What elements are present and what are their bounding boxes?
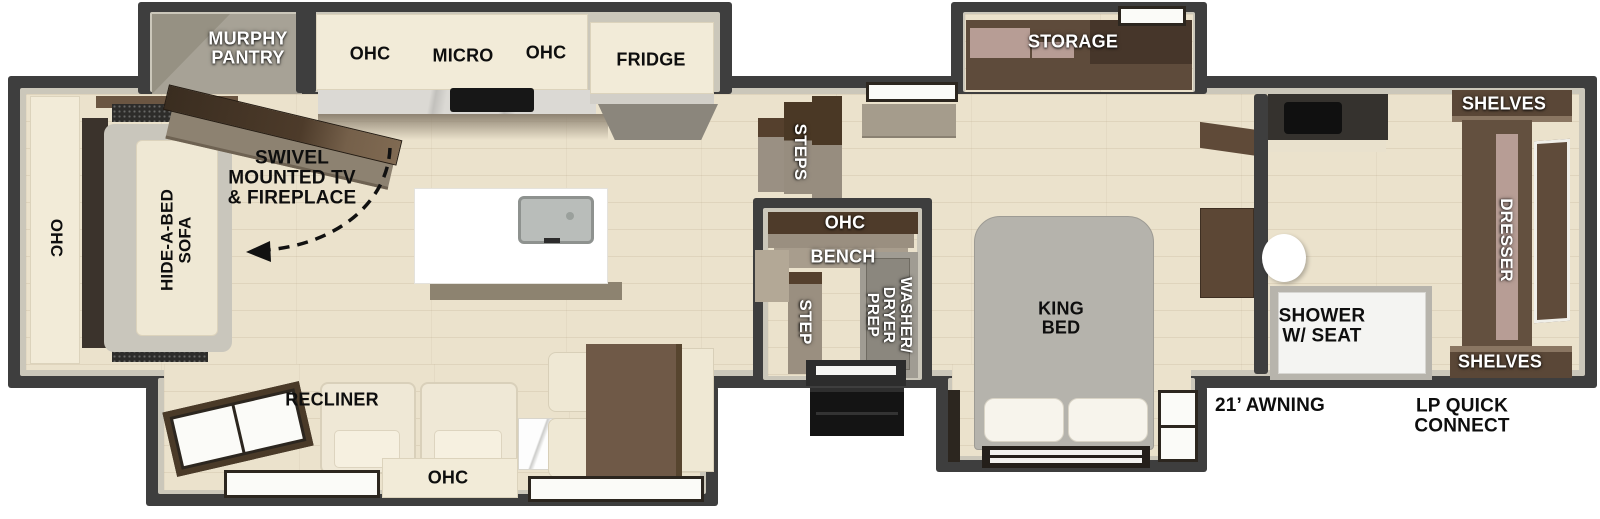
steps-tread-1 — [758, 118, 784, 192]
kitchen-ohc-left-label: OHC — [350, 45, 391, 64]
awning-label: 21’ AWNING — [1215, 396, 1325, 416]
storage-label: STORAGE — [1028, 33, 1118, 52]
bench-corner-cabinet — [755, 250, 789, 302]
living-slide-window-1 — [224, 470, 380, 498]
shower-label: SHOWER W/ SEAT — [1279, 306, 1366, 346]
bath-vanity-base — [1268, 140, 1386, 152]
mid-top-window — [866, 82, 958, 102]
pantry-kitchen-divider-wall — [296, 2, 316, 93]
micro-label: MICRO — [433, 47, 494, 66]
bed-foot-window-pane1 — [990, 450, 1142, 455]
swivel-tv-label: SWIVEL MOUNTED TV & FIREPLACE — [228, 148, 357, 207]
murphy-pantry-label: MURPHY PANTRY — [208, 29, 287, 66]
entry-steps-edge — [816, 412, 898, 415]
dinette-table — [586, 344, 682, 476]
storage-drawer-left — [970, 28, 1030, 58]
bed-foot-window-pane2 — [990, 458, 1142, 463]
fridge-base — [590, 94, 714, 104]
island-sink — [518, 196, 594, 244]
storage-window — [1118, 6, 1186, 26]
lp-quick-connect-label: LP QUICK CONNECT — [1414, 396, 1509, 436]
bed-slide-left-window — [948, 390, 960, 462]
steps-label: STEPS — [791, 124, 809, 181]
toilet — [1262, 234, 1306, 282]
entry-door-sill — [816, 366, 896, 375]
bath-sink — [1284, 102, 1342, 134]
mid-ohc-label: OHC — [825, 214, 866, 233]
pillow-left — [984, 398, 1064, 442]
bed-bath-divider-wall — [1254, 94, 1268, 374]
floorplan: MURPHY PANTRY OHC MICRO OHC FRIDGE STORA… — [0, 0, 1600, 519]
cooktop — [450, 88, 534, 112]
living-slide-window-2 — [528, 476, 704, 502]
rear-ohc-label: OHC — [47, 219, 65, 257]
dresser-label: DRESSER — [1497, 198, 1515, 282]
shelves-bottom-label: SHELVES — [1458, 353, 1542, 372]
pillow-right — [1068, 398, 1148, 442]
step-label: STEP — [796, 299, 814, 344]
living-ohc-label: OHC — [428, 469, 469, 488]
bench-label: BENCH — [810, 248, 875, 267]
fridge-label: FRIDGE — [616, 51, 685, 70]
dinette-banquette — [680, 348, 714, 472]
fridge-shadow — [598, 104, 718, 140]
bed-slide-right-window — [1158, 390, 1198, 462]
kitchen-ohc-right-label: OHC — [526, 44, 567, 63]
recliner-label: RECLINER — [285, 391, 379, 410]
hide-a-bed-sofa-label: HIDE-A-BED SOFA — [158, 189, 193, 291]
steps-tread-3 — [812, 96, 842, 198]
bedroom-wardrobe — [1200, 208, 1254, 298]
island-shadow — [430, 282, 622, 300]
bath-mirror-door — [1534, 139, 1570, 324]
shelves-top-label: SHELVES — [1462, 95, 1546, 114]
king-bed-label: KING BED — [1038, 299, 1084, 336]
washer-dryer-prep-label: WASHER/ DRYER PREP — [863, 277, 913, 353]
bedroom-step-cabinet — [862, 104, 956, 138]
sink-drain — [566, 212, 574, 220]
sink-faucet — [544, 238, 560, 243]
